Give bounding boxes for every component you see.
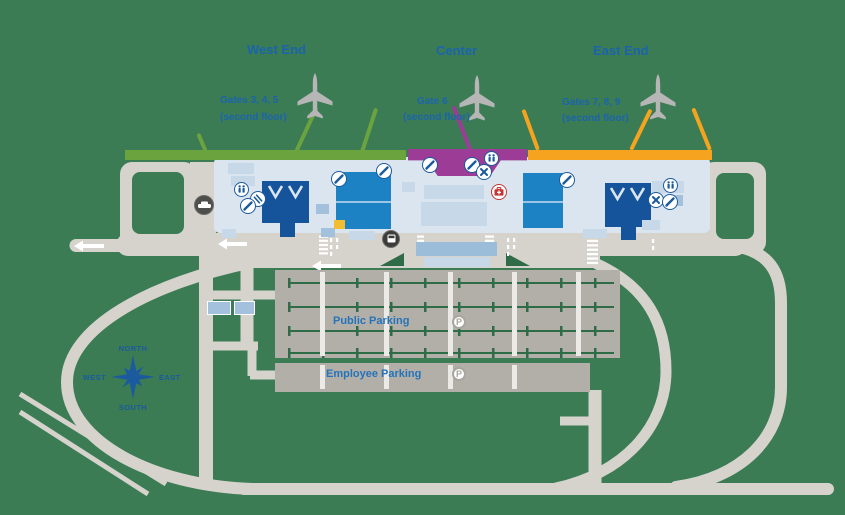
bus-icon bbox=[382, 230, 400, 248]
parking-icon: P bbox=[452, 315, 466, 329]
escalator-icon bbox=[422, 157, 438, 173]
compass-west-label: WEST bbox=[58, 373, 106, 382]
east-curb-strip bbox=[528, 150, 712, 160]
parking-aisle bbox=[512, 272, 517, 356]
west-end-title: West End bbox=[247, 42, 306, 57]
compass-south-label: SOUTH bbox=[93, 403, 173, 412]
parking-aisle bbox=[448, 272, 453, 356]
airport-map: Public Parking Employee Parking P P bbox=[0, 0, 845, 515]
parking-icon: P bbox=[452, 367, 466, 381]
center-floor-label: (second floor) bbox=[403, 112, 470, 123]
center-title: Center bbox=[436, 43, 477, 58]
escalator-icon bbox=[331, 171, 347, 187]
service-loop-east-infield bbox=[716, 173, 754, 239]
terminal-detail-rect bbox=[349, 231, 375, 240]
roads-layer bbox=[0, 0, 845, 515]
escalator-icon bbox=[662, 194, 678, 210]
terminal-detail-rect bbox=[321, 228, 335, 237]
terminal-skybridge bbox=[416, 242, 497, 256]
concourse-building-west-leg bbox=[280, 223, 295, 237]
terminal-detail-rect bbox=[402, 182, 415, 192]
concourse-building-west bbox=[262, 181, 309, 223]
west-gates-label: Gates 3, 4, 5 bbox=[220, 95, 278, 106]
compass-east-label: EAST bbox=[159, 373, 207, 382]
terminal-detail-rect bbox=[222, 229, 236, 238]
terminal-walkway-bridge bbox=[424, 257, 490, 267]
escalator-icon bbox=[240, 198, 256, 214]
east-floor-label: (second floor) bbox=[562, 113, 629, 124]
public-parking-label: Public Parking bbox=[333, 315, 409, 327]
compass-rose-icon bbox=[111, 355, 155, 399]
terminal-detail-rect bbox=[421, 202, 487, 226]
terminal-detail-rect bbox=[228, 163, 254, 174]
employee-parking-label: Employee Parking bbox=[326, 368, 421, 380]
terminal-detail-rect bbox=[583, 229, 607, 238]
east-end-title: East End bbox=[593, 43, 649, 58]
compass-north-label: NORTH bbox=[93, 344, 173, 353]
parking-detail-rect bbox=[207, 301, 231, 315]
loop-road-outer-right bbox=[676, 246, 781, 487]
parking-aisle bbox=[576, 272, 581, 356]
restroom-icon bbox=[663, 178, 678, 193]
parking-detail-rect bbox=[234, 301, 255, 315]
parking-aisle bbox=[320, 365, 325, 389]
first-aid-icon bbox=[491, 184, 507, 200]
center-gates-label: Gate 6 bbox=[417, 96, 448, 107]
terminal-detail-rect bbox=[424, 185, 484, 199]
east-gates-label: Gates 7, 8, 9 bbox=[562, 97, 620, 108]
concourse-building-center bbox=[523, 173, 563, 228]
parking-aisle bbox=[320, 272, 325, 356]
escalator-icon bbox=[559, 172, 575, 188]
security-checkpoint-icon bbox=[476, 164, 492, 180]
escalator-icon bbox=[376, 163, 392, 179]
airplane-icon bbox=[640, 73, 676, 125]
terminal-detail-rect bbox=[642, 220, 660, 230]
terminal-detail-rect-yellow bbox=[334, 220, 345, 229]
west-floor-label: (second floor) bbox=[220, 112, 287, 123]
concourse-building-east-leg bbox=[621, 227, 636, 240]
rental-loop-west-infield bbox=[132, 172, 184, 234]
parking-aisle bbox=[512, 365, 517, 389]
restroom-icon bbox=[234, 182, 249, 197]
airplane-icon bbox=[297, 72, 333, 124]
car-icon bbox=[194, 195, 214, 215]
terminal-detail-rect bbox=[316, 204, 329, 214]
restroom-icon bbox=[484, 151, 499, 166]
parking-aisle bbox=[384, 272, 389, 356]
